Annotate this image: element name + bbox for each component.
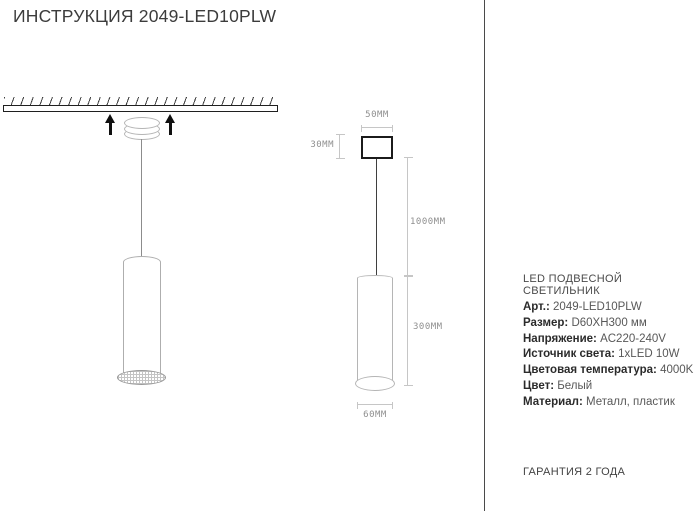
arrow-head bbox=[165, 114, 175, 123]
page-title: ИНСТРУКЦИЯ 2049-LED10PLW bbox=[13, 6, 276, 27]
led-diffuser bbox=[117, 370, 166, 385]
spec-row-voltage: Напряжение: AC220-240V bbox=[523, 332, 693, 348]
arrow-shaft bbox=[109, 123, 112, 135]
dim-body-height: 300MM bbox=[413, 322, 443, 332]
spec-list: Арт.: 2049-LED10PLW Размер: D60XH300 мм … bbox=[523, 300, 693, 411]
ceiling-bar bbox=[3, 105, 278, 112]
spec-row-color: Цвет: Белый bbox=[523, 379, 693, 395]
warranty-note: ГАРАНТИЯ 2 ГОДА bbox=[523, 466, 625, 478]
dim-body-diameter: 60MM bbox=[352, 410, 398, 420]
suspension-wire bbox=[141, 139, 142, 257]
spec-row-color-temperature: Цветовая температура: 4000K bbox=[523, 363, 693, 379]
spec-row-light-source: Источник света: 1xLED 10W bbox=[523, 347, 693, 363]
dim-line-body-diameter bbox=[357, 404, 393, 405]
canopy-side-view bbox=[361, 136, 393, 159]
spec-row-article: Арт.: 2049-LED10PLW bbox=[523, 300, 693, 316]
product-type-heading: LED ПОДВЕСНОЙ СВЕТИЛЬНИК bbox=[523, 273, 700, 297]
dim-line-canopy-height bbox=[339, 134, 340, 159]
ceiling-hatching bbox=[4, 97, 277, 105]
spec-row-material: Материал: Металл, пластик bbox=[523, 395, 693, 411]
mount-arrow-right-icon bbox=[165, 114, 175, 135]
mount-arrow-left-icon bbox=[105, 114, 115, 135]
lamp-body-side-view bbox=[357, 275, 393, 385]
arrow-shaft bbox=[169, 123, 172, 135]
dim-wire-length: 1000MM bbox=[410, 217, 446, 227]
dim-canopy-width: 50MM bbox=[357, 110, 397, 120]
vertical-divider bbox=[484, 0, 485, 511]
dim-line-wire-length bbox=[407, 157, 408, 276]
lamp-body-bottom-ellipse bbox=[355, 376, 395, 391]
dim-canopy-height: 30MM bbox=[306, 140, 334, 150]
arrow-head bbox=[105, 114, 115, 123]
instruction-sheet: ИНСТРУКЦИЯ 2049-LED10PLW 50MM 30MM bbox=[0, 0, 700, 511]
canopy-ellipse-top bbox=[124, 117, 160, 129]
suspension-wire-side-view bbox=[376, 159, 377, 275]
dim-line-canopy-width bbox=[361, 127, 393, 128]
lamp-body bbox=[123, 256, 161, 384]
spec-row-size: Размер: D60XH300 мм bbox=[523, 316, 693, 332]
ceiling-canopy bbox=[124, 117, 160, 140]
dim-line-body-height bbox=[407, 276, 408, 386]
